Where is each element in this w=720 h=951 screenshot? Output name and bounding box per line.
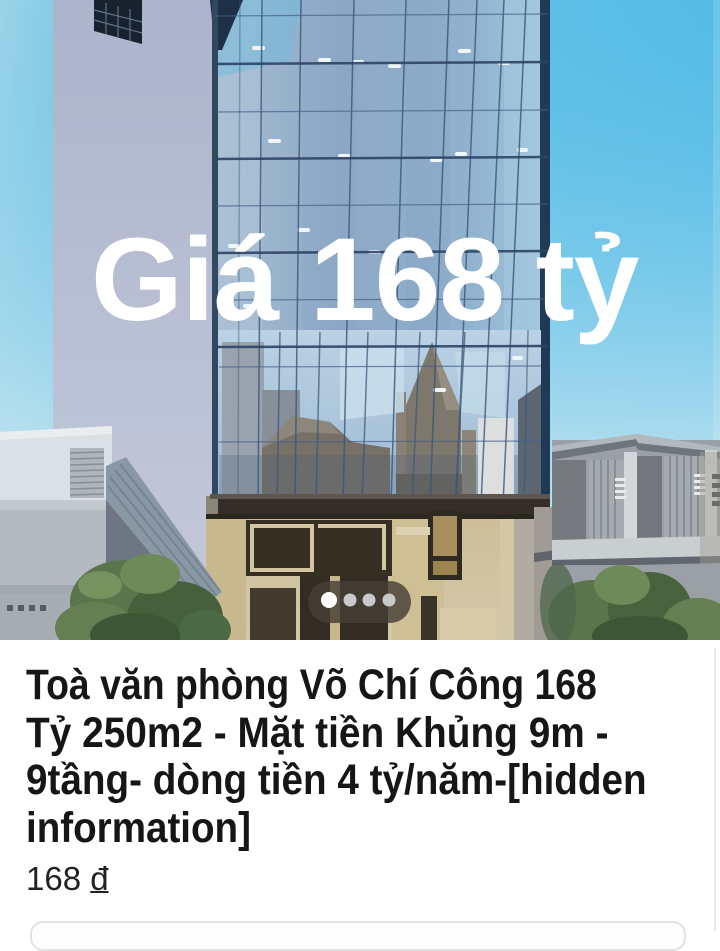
svg-text:Giá 168 tỷ: Giá 168 tỷ xyxy=(91,214,639,346)
